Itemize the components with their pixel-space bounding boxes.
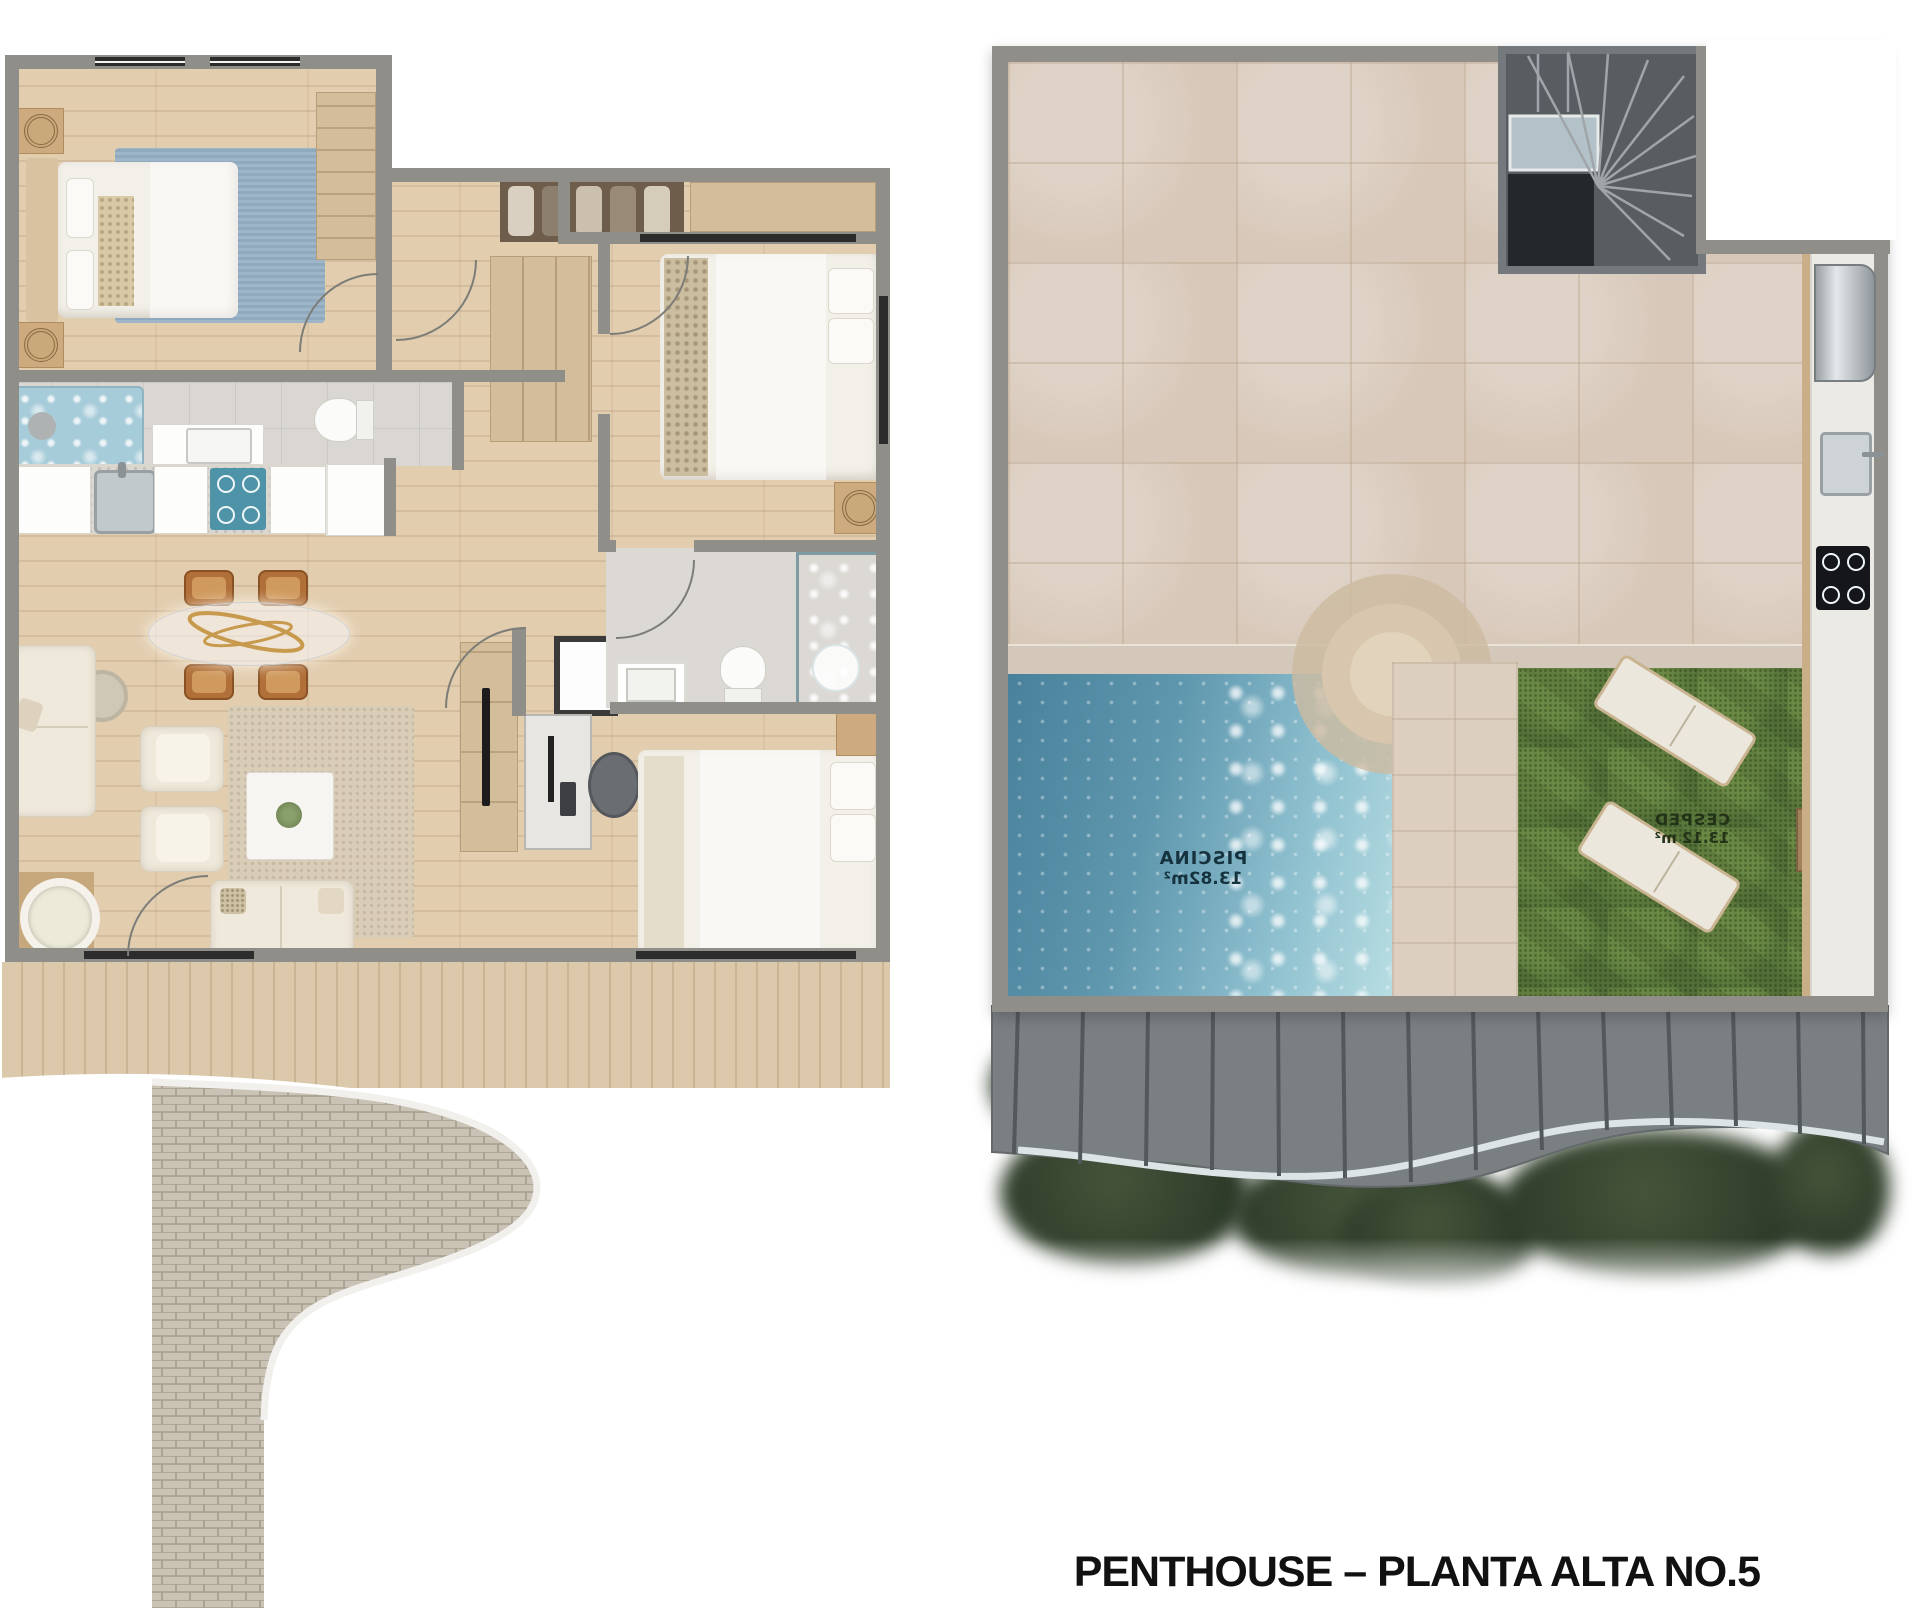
burner-icon (1847, 553, 1865, 571)
lawn-label: CESPED 13.12 m² (1614, 810, 1770, 847)
pendant-light-icon (187, 605, 306, 658)
outdoor-faucet-icon (1862, 452, 1884, 457)
lawn-area: 13.12 m² (1614, 829, 1770, 847)
wall (1702, 240, 1890, 254)
pool-steps (1282, 674, 1392, 784)
door-arcs (128, 256, 694, 956)
stairwell-steps (1498, 46, 1706, 274)
stairwell-cutout (1706, 40, 1896, 240)
burner-icon (1822, 586, 1840, 604)
counter-wood-edge (1802, 254, 1810, 996)
pool-area: 13.82m² (1118, 869, 1288, 889)
sheet-title: PENTHOUSE – PLANTA ALTA NO.5 (1000, 1548, 1760, 1597)
pool-name: PISCINA (1118, 848, 1288, 869)
outdoor-fridge (1814, 264, 1876, 382)
outdoor-sink (1820, 432, 1872, 496)
pool-label: PISCINA 13.82m² (1118, 848, 1288, 889)
apartment-overlay (0, 0, 960, 1608)
wall (1696, 46, 1706, 254)
floorplan-sheet: PISCINA 13.82m² CESPED 13.12 m² (0, 0, 1920, 1608)
walkway-tiles (1392, 662, 1518, 996)
burner-icon (1847, 586, 1865, 604)
lawn-name: CESPED (1614, 810, 1770, 829)
burner-icon (1822, 553, 1840, 571)
tree-fade (980, 1238, 1892, 1318)
outdoor-cooktop (1816, 546, 1870, 610)
